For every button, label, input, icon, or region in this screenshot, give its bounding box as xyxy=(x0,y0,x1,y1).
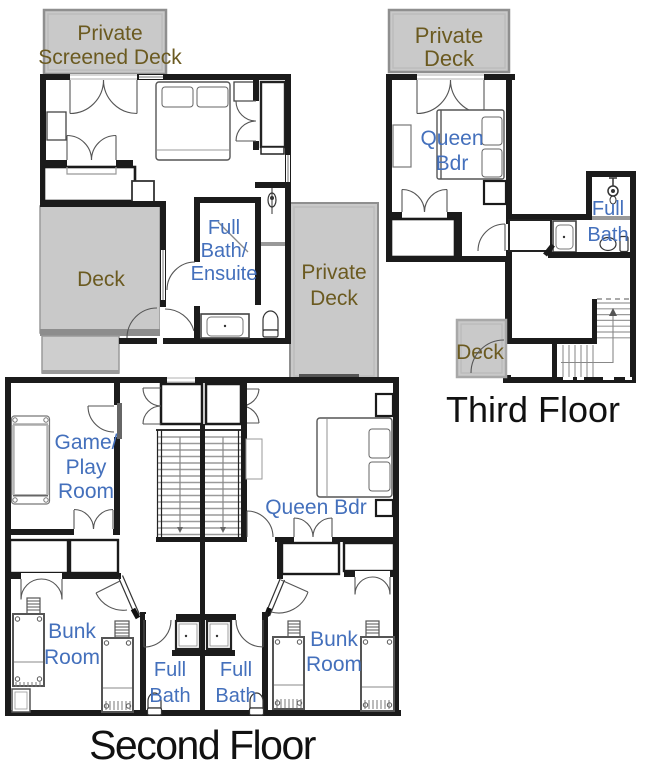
svg-text:Full: Full xyxy=(220,659,252,681)
svg-text:Deck: Deck xyxy=(456,341,504,364)
svg-text:Private: Private xyxy=(301,261,366,284)
svg-text:Full: Full xyxy=(208,217,240,239)
svg-text:Queen Bdr: Queen Bdr xyxy=(265,496,367,519)
svg-text:Full: Full xyxy=(154,659,186,681)
svg-text:Deck: Deck xyxy=(424,46,475,71)
svg-text:Bath: Bath xyxy=(149,685,190,707)
svg-text:Bunk: Bunk xyxy=(48,620,96,643)
svg-text:Full: Full xyxy=(592,198,624,220)
svg-text:Second Floor: Second Floor xyxy=(89,722,316,768)
svg-text:Game/: Game/ xyxy=(54,431,117,454)
svg-text:Private: Private xyxy=(77,22,142,45)
svg-text:Bath: Bath xyxy=(587,224,628,246)
svg-text:Screened Deck: Screened Deck xyxy=(38,46,182,69)
svg-text:Third Floor: Third Floor xyxy=(446,389,620,430)
svg-text:Bath/: Bath/ xyxy=(201,240,248,262)
svg-text:Bdr: Bdr xyxy=(436,152,469,175)
svg-text:Bunk: Bunk xyxy=(310,628,358,651)
svg-text:Deck: Deck xyxy=(77,268,125,291)
svg-text:Room: Room xyxy=(306,653,362,676)
svg-text:Queen: Queen xyxy=(420,127,483,150)
svg-text:Room: Room xyxy=(44,646,100,669)
svg-text:Room: Room xyxy=(58,480,114,503)
svg-text:Play: Play xyxy=(66,456,107,479)
svg-text:Ensuite: Ensuite xyxy=(191,263,258,285)
svg-text:Deck: Deck xyxy=(310,287,358,310)
svg-text:Bath: Bath xyxy=(215,685,256,707)
svg-text:Private: Private xyxy=(415,23,483,48)
